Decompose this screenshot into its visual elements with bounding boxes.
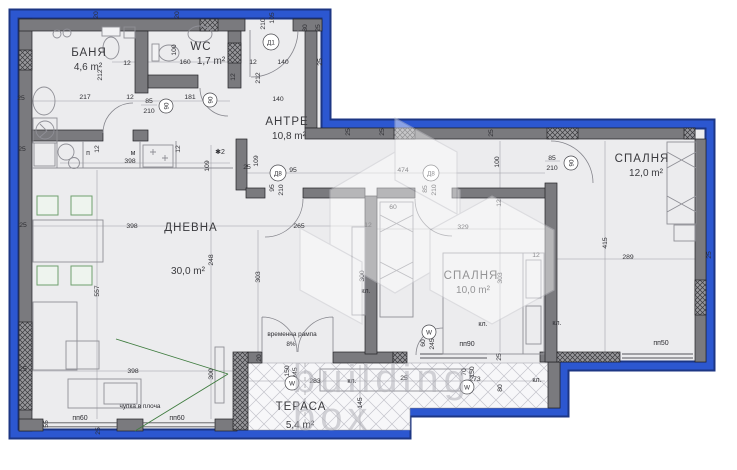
hatch-right-wall bbox=[695, 280, 706, 315]
watermark-text: box bbox=[293, 395, 373, 439]
dim-label: 60 bbox=[420, 339, 427, 347]
dim-label: 85 bbox=[548, 155, 556, 162]
door-tag: 90 bbox=[208, 96, 215, 103]
slab-break-note: чупка в плоча bbox=[120, 403, 161, 410]
hatch-bedroom12-south bbox=[557, 352, 620, 362]
dim-label: 25 bbox=[243, 164, 251, 171]
dim-label: 212 bbox=[97, 69, 104, 81]
wall-bedroom10-north-b bbox=[452, 188, 548, 198]
room-area: 12,0 m² bbox=[629, 168, 664, 179]
dim-label: 210 bbox=[278, 184, 285, 196]
dim-label: 12 bbox=[94, 145, 101, 153]
dim-label: 289 bbox=[622, 254, 634, 261]
dim-label: 25 bbox=[17, 95, 25, 102]
dim-label: 398 bbox=[127, 368, 139, 375]
wall-bath-south-a bbox=[32, 130, 103, 141]
dim-label: 303 bbox=[255, 271, 262, 283]
dim-label: 217 bbox=[79, 94, 91, 101]
wall-bottom-a bbox=[19, 419, 43, 431]
dim-label: 20 bbox=[174, 11, 181, 19]
wall-notch-vertical bbox=[305, 31, 317, 128]
dim-label: 25 bbox=[379, 128, 386, 136]
window-label: пп90 bbox=[459, 341, 474, 348]
wall-step-vertical bbox=[548, 362, 560, 408]
dim-label: 160 bbox=[179, 59, 191, 66]
window-label: пп50 bbox=[653, 340, 668, 347]
door-tag: 90 bbox=[569, 159, 576, 166]
floor-plan-page: БАНЯ 4,6 m² WC 1,7 m² АНТРЕ 10,8 m² СПАЛ… bbox=[0, 0, 737, 470]
dim-label: 300 bbox=[208, 368, 215, 380]
dim-label: 85 bbox=[145, 98, 153, 105]
dim-label: 210 bbox=[143, 108, 155, 115]
dim-label: 95 bbox=[289, 167, 297, 174]
dim-label: 30 bbox=[302, 24, 309, 32]
dim-label: 25 bbox=[496, 353, 503, 361]
wall-bottom-b bbox=[117, 419, 143, 431]
dining-chair bbox=[37, 266, 58, 285]
room-name: ДНЕВНА bbox=[164, 222, 217, 234]
closet-label: кл. bbox=[478, 321, 487, 328]
closet-label: кл. bbox=[532, 377, 541, 384]
wall-right bbox=[695, 139, 706, 362]
wall-notch-horizontal bbox=[305, 128, 695, 139]
kitchen-label: м bbox=[131, 150, 136, 157]
dining-chair bbox=[37, 196, 58, 215]
dim-label: 25 bbox=[18, 146, 26, 153]
dim-label: 210 bbox=[260, 18, 267, 30]
room-name: СПАЛНЯ bbox=[615, 153, 670, 165]
dim-label: 12 bbox=[230, 73, 237, 81]
ramp-slope-note: 8% bbox=[286, 341, 296, 348]
toilet-tank-bath bbox=[102, 27, 120, 36]
ramp-note: временна рампа bbox=[267, 331, 317, 338]
door-tag: Д1 bbox=[267, 40, 275, 47]
wall-wc-south bbox=[148, 75, 198, 88]
dim-label: 25 bbox=[95, 427, 102, 435]
hatch-terrace-left bbox=[233, 352, 248, 430]
dim-label: 100 bbox=[171, 44, 178, 56]
hatch-wc-east bbox=[228, 43, 241, 63]
dim-label: 25 bbox=[706, 251, 713, 259]
dim-label: 181 bbox=[184, 94, 196, 101]
dim-label: 100 bbox=[494, 156, 501, 168]
room-area: 10,8 m² bbox=[272, 131, 307, 142]
star-note: ✱2 bbox=[215, 148, 225, 156]
dim-label: 265 bbox=[293, 223, 305, 230]
hatch-corridor-b bbox=[547, 128, 578, 139]
dim-label: 55 bbox=[43, 420, 50, 428]
dim-label: 398 bbox=[124, 158, 136, 165]
hatch-left-top bbox=[19, 50, 32, 70]
dim-label: 398 bbox=[126, 223, 138, 230]
floor-plan-drawing: БАНЯ 4,6 m² WC 1,7 m² АНТРЕ 10,8 m² СПАЛ… bbox=[0, 0, 737, 470]
hatch-corridor-c bbox=[684, 128, 695, 139]
room-name: WC bbox=[190, 41, 211, 53]
dim-label: 109 bbox=[204, 160, 211, 172]
room-name: АНТРЕ bbox=[265, 116, 308, 128]
room-name: БАНЯ bbox=[71, 47, 107, 59]
window-label: пп60 bbox=[72, 415, 87, 422]
dining-chair bbox=[71, 266, 92, 285]
window-tag: W bbox=[426, 330, 432, 337]
dim-label: 25 bbox=[488, 129, 495, 137]
dim-label: 210 bbox=[546, 165, 558, 172]
closet-label: кл. bbox=[552, 320, 561, 327]
wc-toilet-tank bbox=[152, 44, 159, 61]
dim-label: 12 bbox=[249, 59, 257, 66]
dim-label: 80 bbox=[497, 384, 504, 392]
dim-label: 20 bbox=[93, 11, 100, 19]
door-tag: 90 bbox=[164, 102, 171, 109]
dining-chair bbox=[71, 196, 92, 215]
dim-label: 12 bbox=[175, 145, 182, 153]
dim-label: 140 bbox=[277, 59, 289, 66]
dim-label: 20 bbox=[256, 354, 263, 362]
dim-label: 557 bbox=[94, 285, 101, 297]
room-area: 30,0 m² bbox=[171, 266, 206, 277]
dim-label: 12 bbox=[123, 60, 131, 67]
dim-label: 12 bbox=[126, 94, 134, 101]
dim-label: 95 bbox=[269, 184, 276, 192]
dim-label: 415 bbox=[602, 237, 609, 249]
kitchen-label: п bbox=[86, 150, 90, 157]
dim-label: 212 bbox=[255, 72, 262, 84]
dim-label: 25 bbox=[19, 366, 27, 373]
dim-label: 105 bbox=[269, 12, 276, 24]
wall-hall-south-a bbox=[246, 188, 265, 198]
dim-label: 150 bbox=[284, 365, 291, 377]
wall-bath-south-b bbox=[133, 130, 148, 141]
dim-label: 25 bbox=[317, 58, 324, 66]
dim-label: 25 bbox=[19, 222, 27, 229]
closet-label: кл. bbox=[361, 288, 370, 295]
dim-label: 25 bbox=[315, 24, 322, 32]
dim-label: 25 bbox=[345, 128, 352, 136]
dim-label: 245 bbox=[429, 338, 436, 350]
wall-bath-east bbox=[135, 31, 148, 93]
dim-label: 140 bbox=[272, 96, 284, 103]
door-tag: Д8 bbox=[274, 171, 282, 178]
room-area: 1,7 m² bbox=[197, 56, 226, 67]
dim-label: 109 bbox=[253, 155, 260, 167]
dim-label: 248 bbox=[208, 254, 215, 266]
window-label: пп60 bbox=[169, 415, 184, 422]
